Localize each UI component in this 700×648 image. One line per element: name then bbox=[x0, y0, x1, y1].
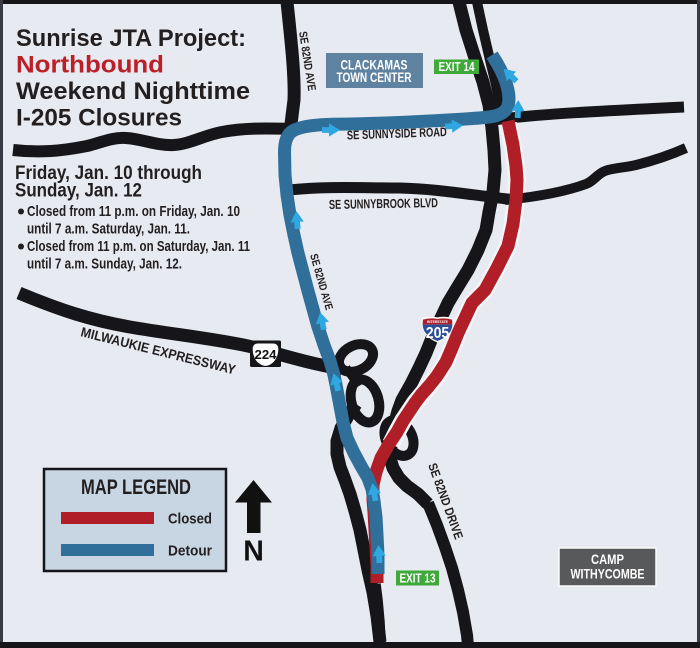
svg-text:224: 224 bbox=[255, 348, 277, 362]
svg-text:Closed from 11 p.m. on Friday,: Closed from 11 p.m. on Friday, Jan. 10 bbox=[27, 203, 240, 220]
svg-text:Weekend Nighttime: Weekend Nighttime bbox=[16, 78, 250, 105]
svg-text:205: 205 bbox=[426, 325, 450, 342]
svg-text:Sunday, Jan. 12: Sunday, Jan. 12 bbox=[15, 180, 142, 202]
svg-text:SE SUNNYBROOK BLVD: SE SUNNYBROOK BLVD bbox=[329, 195, 438, 212]
svg-text:until 7 a.m. Saturday, Jan. 11: until 7 a.m. Saturday, Jan. 11. bbox=[27, 221, 190, 238]
svg-text:EXIT 13: EXIT 13 bbox=[400, 572, 436, 586]
svg-text:INTERSTATE: INTERSTATE bbox=[427, 320, 449, 324]
svg-text:Closed from 11 p.m. on Saturda: Closed from 11 p.m. on Saturday, Jan. 11 bbox=[27, 238, 250, 255]
svg-text:Northbound: Northbound bbox=[16, 52, 164, 79]
svg-text:Closed: Closed bbox=[168, 511, 212, 528]
svg-text:until 7 a.m. Sunday, Jan. 12.: until 7 a.m. Sunday, Jan. 12. bbox=[27, 256, 182, 273]
svg-text:TOWN CENTER: TOWN CENTER bbox=[337, 70, 412, 85]
svg-text:CAMP: CAMP bbox=[591, 552, 624, 567]
svg-text:EXIT 14: EXIT 14 bbox=[439, 60, 475, 74]
svg-text:Sunrise JTA Project:: Sunrise JTA Project: bbox=[16, 25, 246, 52]
svg-text:WITHYCOMBE: WITHYCOMBE bbox=[571, 567, 645, 582]
svg-text:N: N bbox=[243, 536, 264, 568]
svg-text:MAP LEGEND: MAP LEGEND bbox=[81, 475, 191, 499]
svg-text:Detour: Detour bbox=[168, 543, 212, 560]
svg-text:I-205 Closures: I-205 Closures bbox=[16, 105, 182, 132]
